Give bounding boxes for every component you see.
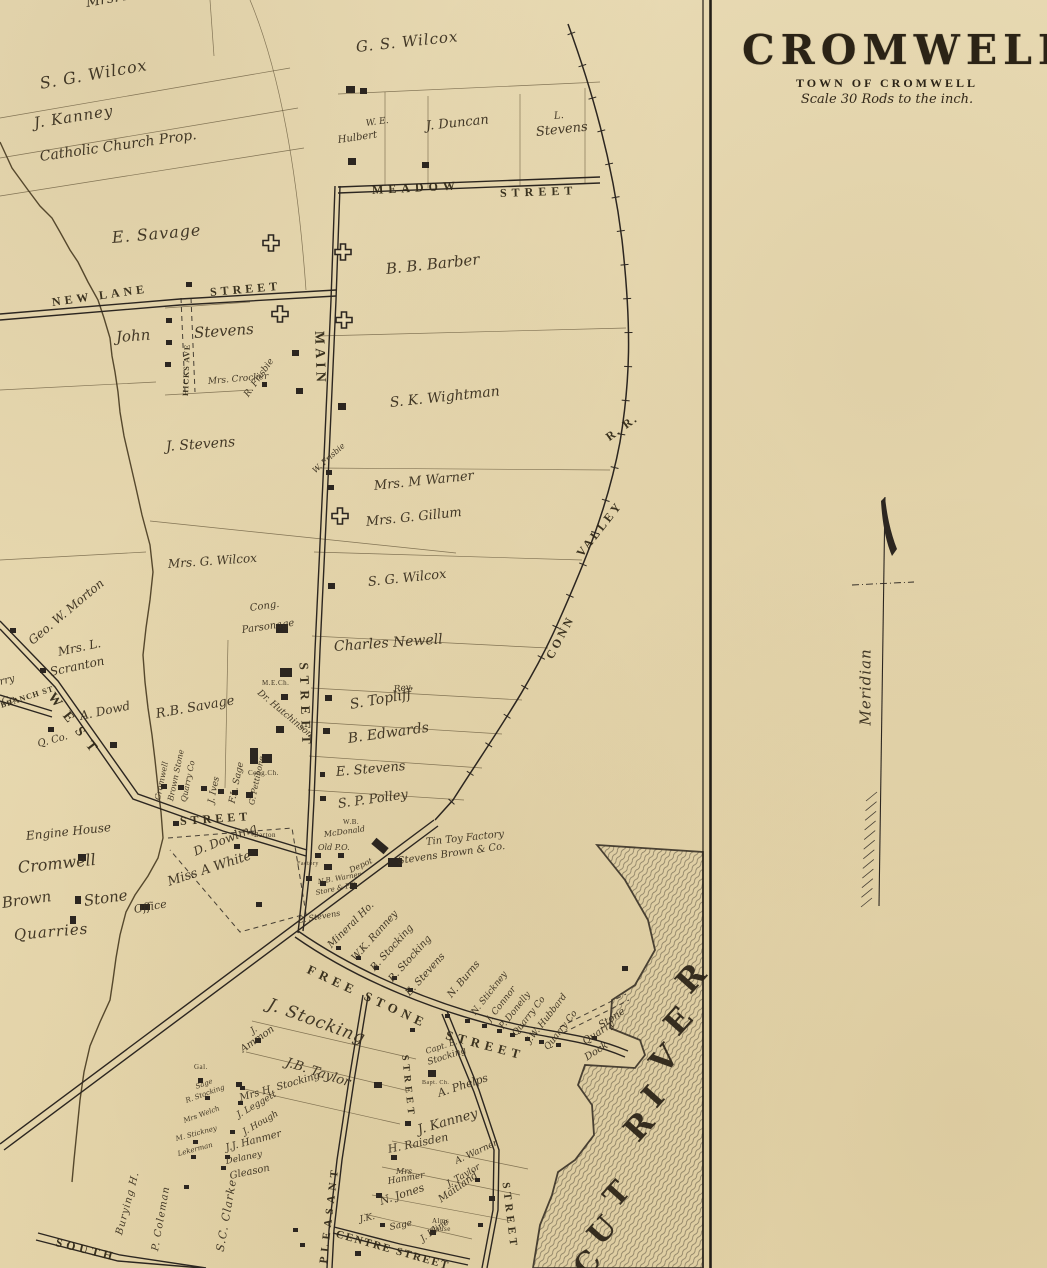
meridian-feather-tick — [862, 879, 873, 888]
building — [296, 388, 303, 394]
road-line — [338, 183, 600, 193]
church-building — [332, 508, 348, 524]
dashed-lane — [191, 298, 195, 392]
map-subtitle: TOWN OF CROMWELL — [742, 76, 1032, 91]
building — [166, 340, 172, 345]
building — [325, 695, 332, 701]
lot-line — [0, 148, 304, 196]
lot-line — [311, 688, 522, 700]
lot-line — [225, 640, 228, 788]
meridian-cross-tick — [852, 582, 914, 585]
lot-line — [0, 68, 290, 118]
meridian-feather-tick — [866, 792, 877, 801]
meridian-feather-tick — [863, 859, 874, 868]
lot-line — [0, 552, 146, 560]
railroad-tick — [485, 743, 492, 747]
building — [292, 350, 299, 356]
lot-line — [165, 390, 252, 395]
lot-line — [240, 1088, 400, 1124]
road-line — [327, 995, 363, 1268]
building — [510, 1033, 515, 1037]
road-line — [38, 1233, 206, 1268]
meridian-feather-tick — [863, 850, 874, 859]
building — [489, 1196, 495, 1201]
building — [374, 1082, 382, 1088]
road-line — [295, 937, 625, 1057]
railroad-tick — [617, 230, 625, 231]
building — [193, 1140, 198, 1144]
building — [262, 382, 267, 387]
building — [240, 1086, 245, 1090]
building — [391, 1155, 397, 1160]
building — [465, 1019, 470, 1023]
building — [280, 668, 292, 677]
building — [255, 1038, 261, 1043]
building — [338, 403, 346, 410]
building — [422, 162, 429, 168]
lot-line — [310, 722, 502, 734]
building — [276, 726, 284, 733]
church-building — [272, 306, 288, 322]
railroad-curve — [435, 24, 629, 820]
road-line — [298, 931, 628, 1051]
lot-line — [309, 756, 482, 768]
meridian-feather-tick — [864, 831, 875, 840]
building — [410, 1028, 415, 1032]
building — [225, 1155, 230, 1159]
road-line — [447, 1011, 499, 1268]
stream-line — [0, 142, 163, 1182]
building — [186, 282, 192, 287]
building — [40, 668, 46, 673]
meridian-feather-tick — [862, 869, 873, 878]
road-line — [334, 1227, 470, 1259]
map-title-block: CROMWELL TOWN OF CROMWELL Scale 30 Rods … — [742, 26, 1032, 107]
building — [360, 88, 367, 94]
lot-line — [246, 1052, 409, 1091]
building — [246, 792, 253, 798]
railroad-tick — [612, 197, 620, 198]
building — [348, 158, 356, 165]
road-line — [333, 1233, 468, 1265]
building — [205, 1096, 210, 1100]
building — [315, 853, 321, 858]
building — [10, 628, 16, 633]
building — [165, 362, 171, 367]
map-scale-note: Scale 30 Rods to the inch. — [742, 92, 1032, 107]
building — [281, 694, 288, 700]
building — [320, 881, 326, 886]
building — [338, 853, 344, 858]
lot-line — [150, 521, 456, 553]
building — [178, 785, 184, 790]
building — [478, 1223, 483, 1227]
building — [262, 754, 272, 763]
lot-line — [318, 328, 626, 336]
lot-line — [210, 0, 214, 56]
building — [276, 624, 288, 633]
building — [497, 1029, 502, 1033]
lot-line — [338, 82, 600, 94]
building — [320, 796, 326, 801]
building — [428, 1070, 436, 1077]
building — [198, 1078, 203, 1083]
road-line — [0, 621, 307, 850]
road-line — [338, 177, 600, 187]
lot-line — [250, 0, 306, 290]
lot-line — [252, 1021, 416, 1059]
map-canvas — [0, 0, 1047, 1268]
building — [430, 1230, 436, 1235]
lot-line — [392, 1141, 528, 1169]
building — [392, 976, 397, 980]
building — [48, 727, 54, 732]
building — [388, 858, 402, 867]
road-line — [4, 826, 438, 1150]
building — [173, 821, 179, 826]
building — [191, 1155, 196, 1159]
building — [356, 956, 361, 960]
railroad-tick — [467, 771, 474, 775]
map-title: CROMWELL — [742, 26, 1032, 74]
building — [350, 883, 357, 889]
building — [248, 849, 258, 856]
building — [320, 772, 325, 777]
building — [380, 1223, 385, 1227]
building — [405, 1121, 411, 1126]
meridian-line — [879, 497, 885, 906]
building — [306, 876, 312, 881]
building — [355, 1251, 361, 1256]
meridian-feather-tick — [865, 811, 876, 820]
building — [445, 1014, 450, 1018]
building — [376, 1193, 382, 1198]
building — [201, 786, 207, 791]
building — [110, 742, 117, 748]
building — [184, 1185, 189, 1189]
meridian-feather-tick — [866, 802, 877, 811]
lot-line — [314, 552, 582, 560]
building — [323, 728, 330, 734]
railroad-tick — [617, 434, 625, 435]
building — [238, 1101, 243, 1105]
church-building — [336, 312, 352, 328]
building — [525, 1037, 530, 1041]
building — [539, 1040, 544, 1044]
building — [256, 902, 262, 907]
road-line — [442, 1014, 494, 1268]
building — [482, 1024, 487, 1028]
building — [300, 1243, 305, 1247]
map-scan: Mrs. M. BS. G. WilcoxJ. KanneyCatholic C… — [0, 0, 1047, 1268]
building — [218, 789, 224, 794]
building — [592, 1036, 597, 1040]
building — [336, 946, 341, 950]
lot-line — [308, 790, 464, 800]
building — [556, 1043, 561, 1047]
road-line — [0, 290, 336, 314]
road-line — [0, 820, 434, 1144]
building — [78, 854, 86, 861]
building — [475, 1178, 480, 1182]
building — [346, 86, 355, 93]
building — [232, 790, 238, 795]
church-building — [263, 235, 279, 251]
building — [408, 988, 413, 992]
meridian-feather-tick — [864, 840, 875, 849]
building — [622, 966, 628, 971]
building — [166, 318, 172, 323]
building — [328, 485, 334, 490]
building — [140, 904, 150, 910]
building — [374, 966, 379, 970]
building — [161, 784, 167, 789]
building — [324, 864, 332, 870]
dashed-lane — [181, 298, 185, 392]
lot-line — [0, 382, 156, 390]
lot-line — [316, 468, 610, 470]
meridian-feather-tick — [861, 898, 872, 907]
railroad-tick — [622, 400, 630, 401]
building — [326, 470, 332, 475]
building — [371, 838, 388, 854]
building — [234, 844, 240, 849]
building — [250, 748, 258, 764]
lot-line — [312, 636, 548, 648]
meridian-feather-tick — [865, 821, 876, 830]
river-water — [533, 845, 703, 1268]
meridian-feather-tick — [861, 888, 872, 897]
lot-line — [0, 108, 298, 158]
building — [293, 1228, 298, 1232]
building — [75, 896, 81, 904]
building — [70, 916, 76, 924]
building — [221, 1166, 226, 1170]
meridian-arrow — [881, 497, 897, 556]
building — [328, 583, 335, 589]
railroad-tick — [621, 264, 629, 265]
building — [230, 1130, 235, 1134]
